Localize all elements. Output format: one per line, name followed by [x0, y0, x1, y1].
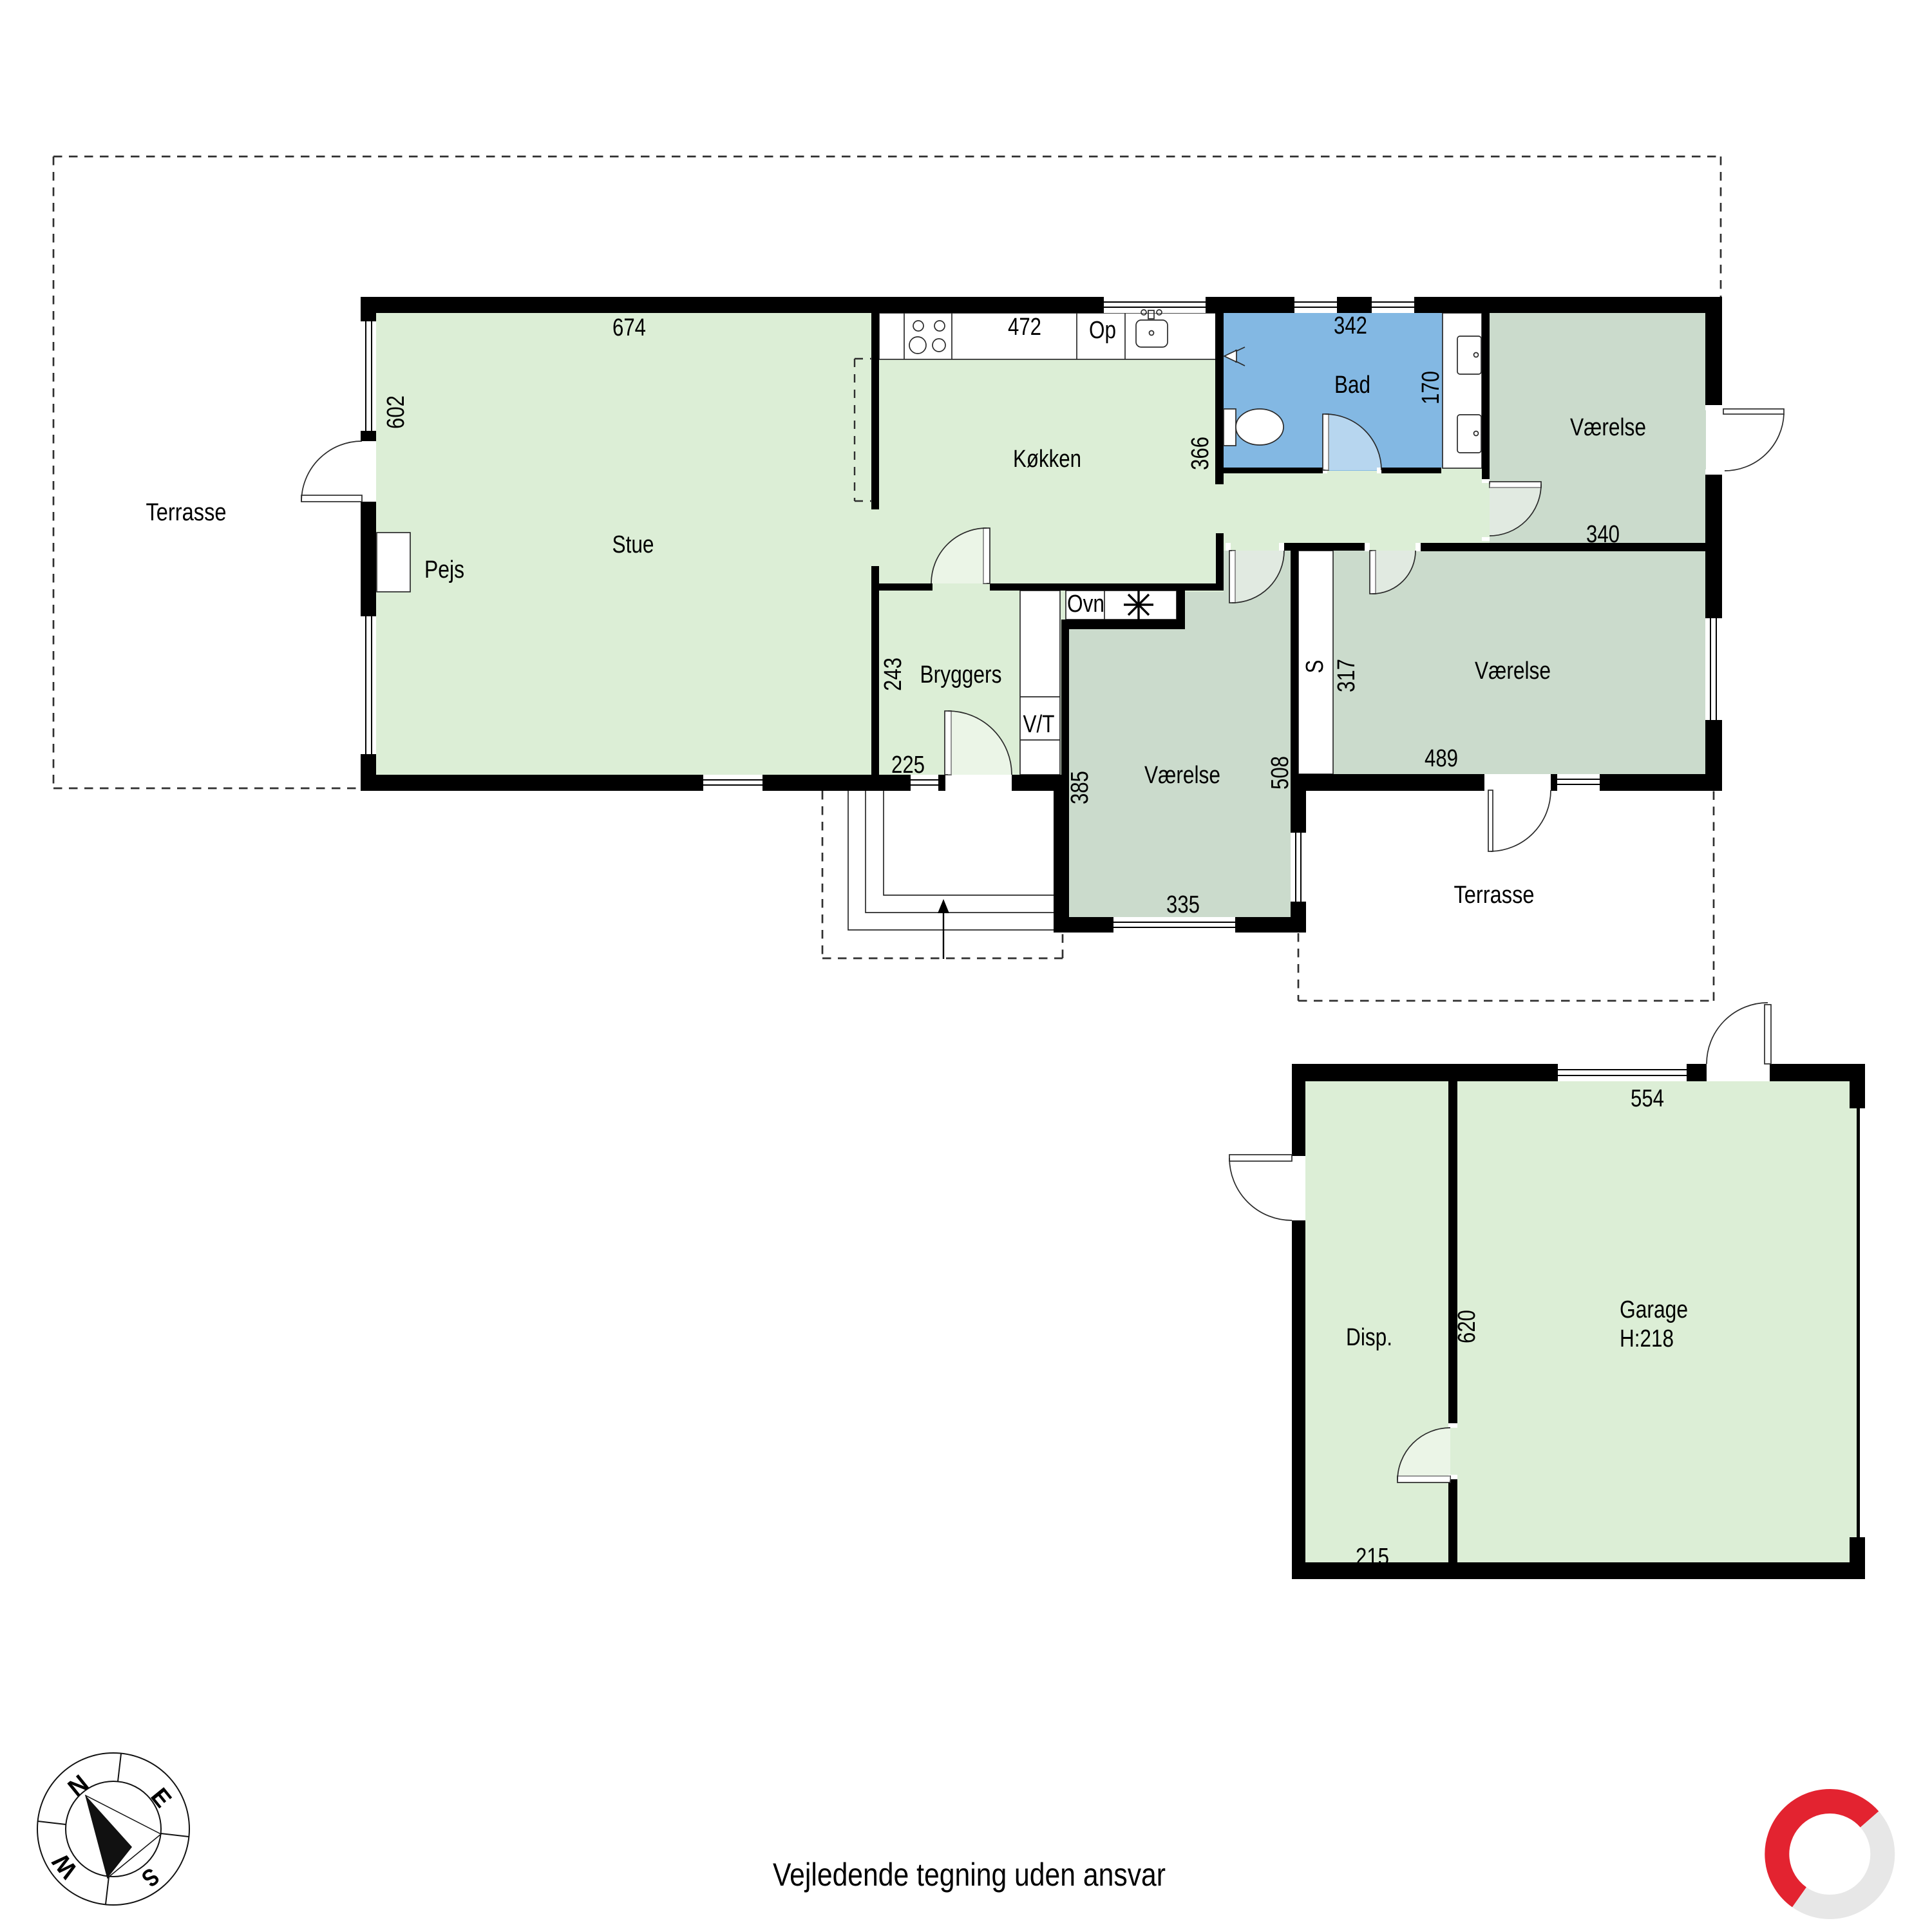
svg-text:Vejledende tegning uden ansvar: Vejledende tegning uden ansvar: [773, 1857, 1166, 1893]
svg-text:Bryggers: Bryggers: [920, 661, 1002, 688]
svg-text:Terrasse: Terrasse: [1454, 882, 1535, 909]
svg-text:Bad: Bad: [1334, 372, 1370, 399]
svg-text:Køkken: Køkken: [1013, 446, 1081, 473]
svg-text:Værelse: Værelse: [1570, 414, 1646, 441]
svg-text:Garage: Garage: [1620, 1296, 1688, 1323]
svg-text:554: 554: [1631, 1085, 1664, 1112]
svg-text:Værelse: Værelse: [1475, 658, 1551, 685]
svg-text:385: 385: [1066, 771, 1094, 804]
svg-text:602: 602: [383, 395, 410, 429]
svg-text:V/T: V/T: [1023, 711, 1055, 738]
svg-text:508: 508: [1267, 756, 1294, 790]
svg-text:340: 340: [1586, 521, 1620, 548]
svg-text:Ovn: Ovn: [1067, 591, 1104, 618]
svg-text:489: 489: [1425, 745, 1458, 772]
svg-text:170: 170: [1417, 371, 1444, 404]
svg-text:472: 472: [1008, 314, 1041, 341]
svg-text:225: 225: [891, 752, 925, 779]
svg-text:S: S: [1302, 660, 1329, 674]
svg-text:Stue: Stue: [612, 531, 654, 558]
svg-text:H:218: H:218: [1620, 1325, 1674, 1352]
svg-text:342: 342: [1334, 312, 1367, 339]
svg-text:620: 620: [1454, 1310, 1481, 1343]
svg-text:243: 243: [880, 658, 907, 691]
svg-text:215: 215: [1356, 1544, 1389, 1571]
svg-text:Op: Op: [1089, 317, 1116, 344]
svg-text:Disp.: Disp.: [1346, 1324, 1392, 1351]
svg-text:317: 317: [1333, 659, 1360, 692]
svg-text:Pejs: Pejs: [424, 556, 464, 583]
svg-text:674: 674: [612, 314, 646, 341]
svg-text:Terrasse: Terrasse: [146, 499, 227, 526]
svg-text:366: 366: [1187, 437, 1214, 470]
svg-text:335: 335: [1166, 891, 1200, 918]
svg-text:Værelse: Værelse: [1144, 762, 1220, 789]
